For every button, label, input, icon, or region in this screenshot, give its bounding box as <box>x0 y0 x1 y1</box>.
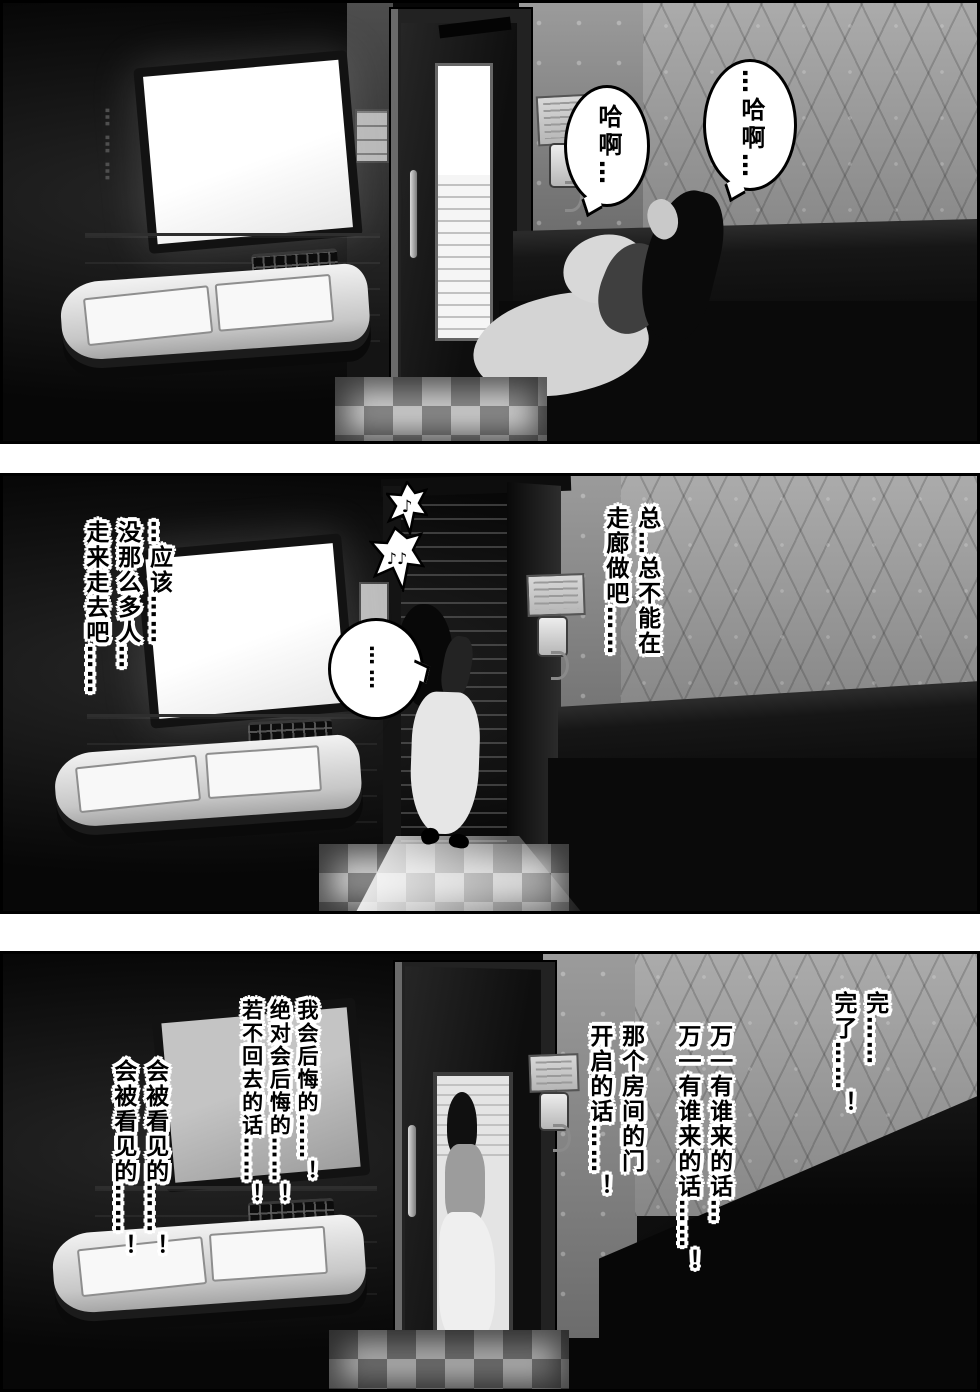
monologue-line: 会被看见的……！ <box>142 1059 167 1259</box>
music-note: ♪♪ <box>387 549 407 568</box>
monologue-line: …应该…… <box>146 520 171 695</box>
sign-text-lines <box>534 580 579 610</box>
bubble-text: 哈啊… <box>594 104 620 188</box>
bubble-text: …哈啊… <box>737 69 763 181</box>
music-note: ♪ <box>402 497 413 517</box>
ellipsis-text: ……… <box>101 107 125 188</box>
monologue-mid-left: 我会后悔的……！ 绝对会后悔的……！ 若不回去的话……！ <box>235 999 323 1206</box>
checker-floor <box>335 377 547 444</box>
monologue-line: 绝对会后悔的……！ <box>268 999 291 1206</box>
speech-bubble-right: …哈啊… <box>703 59 797 191</box>
monologue-right: 总…总不能在 走廊做吧…… <box>595 506 666 656</box>
tv <box>133 50 362 254</box>
monologue-line: 总…总不能在 <box>634 506 659 656</box>
panel-2: ♪ ♪♪ …… 总…总不能在 走廊做吧…… …应该…… 没那么多人… 走来走去吧… <box>0 473 980 914</box>
monologue-right: 万一有谁来的话… 万一有谁来的话……！ <box>667 1024 738 1274</box>
phone-cord <box>553 1124 571 1151</box>
bubble-text: …… <box>365 645 387 693</box>
checker-floor <box>329 1330 569 1392</box>
door-window <box>433 1072 513 1346</box>
light-switch-panel <box>355 109 389 163</box>
monologue-line: 我会后悔的……！ <box>295 999 318 1206</box>
wall-phone <box>539 1092 565 1148</box>
table-mat <box>83 285 213 346</box>
couch-seat <box>548 758 980 914</box>
monologue-line: 那个房间的门 <box>618 1024 643 1199</box>
door-handle <box>409 169 418 259</box>
table-mat <box>209 1226 328 1282</box>
table-mat <box>215 274 335 332</box>
wall-phone <box>537 616 564 676</box>
monologue-line: 万一有谁来的话……！ <box>674 1024 699 1274</box>
monologue-line: 若不回去的话……！ <box>240 999 263 1206</box>
door-window <box>435 63 493 341</box>
monologue-far-left: 会被看见的……！ 会被看见的……！ <box>103 1059 174 1259</box>
speech-bubble-left: 哈啊… <box>564 85 650 207</box>
panel-3: 完…… 完了……！ 万一有谁来的话… 万一有谁来的话……！ 那个房间的门 开启的… <box>0 951 980 1392</box>
monologue-line: 开启的话……！ <box>586 1024 611 1199</box>
wall-sign <box>528 1053 579 1093</box>
tv-screen <box>143 60 353 244</box>
monologue-line: 完…… <box>862 991 887 1116</box>
sign-text-lines <box>536 1060 573 1085</box>
manga-page: { "page": { "type": "manga-comic-page", … <box>0 0 980 1388</box>
table-mat <box>75 755 201 814</box>
monologue-line: 完了……！ <box>830 991 855 1116</box>
monologue-line: 走廊做吧…… <box>602 506 627 656</box>
panel-1: ……… 哈啊… …哈啊… <box>0 0 980 444</box>
monologue-line: 万一有谁来的话… <box>706 1024 731 1274</box>
silence-bubble: …… <box>328 618 424 720</box>
monologue-far-right: 完…… 完了……！ <box>823 991 894 1116</box>
monologue-line: 走来走去吧…… <box>82 520 107 695</box>
door-handle <box>407 1124 417 1218</box>
ellipsis-sfx: ……… <box>101 107 123 188</box>
wall-argyle <box>621 476 980 712</box>
monologue-mid-right: 那个房间的门 开启的话……！ <box>579 1024 650 1199</box>
monologue-line: 没那么多人… <box>114 520 139 695</box>
table-mat <box>205 745 322 799</box>
monologue-line: 会被看见的……！ <box>110 1059 135 1259</box>
wall-sign <box>526 573 585 617</box>
music-note-bubble-large: ♪♪ <box>369 526 425 592</box>
figure-skirt <box>439 1212 495 1342</box>
monologue-left: …应该…… 没那么多人… 走来走去吧…… <box>75 520 177 695</box>
